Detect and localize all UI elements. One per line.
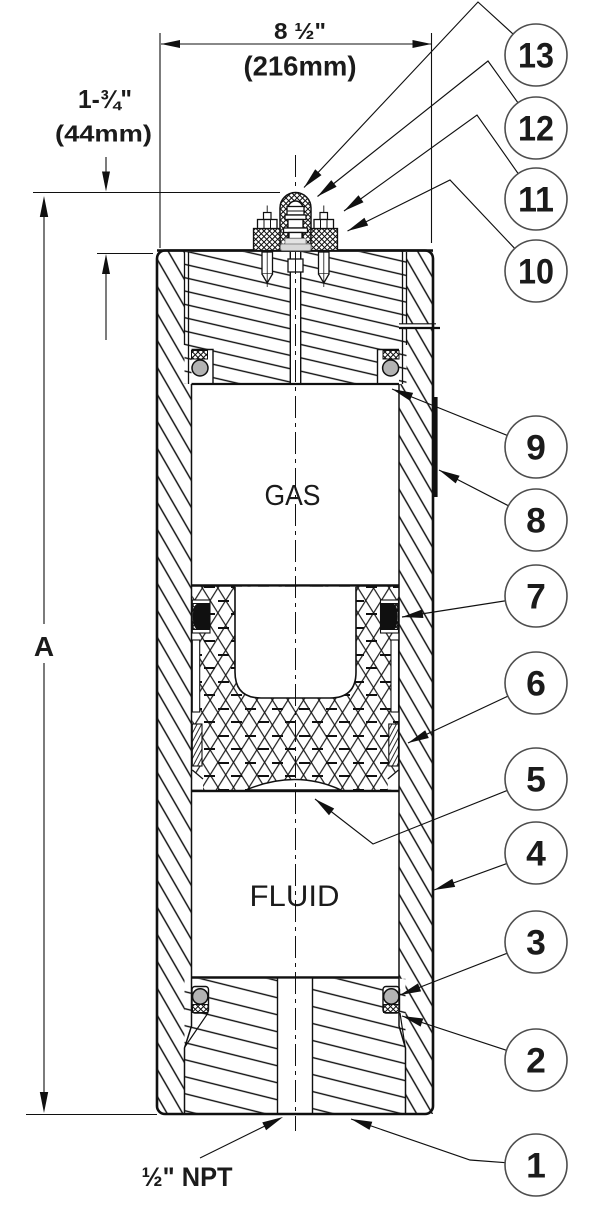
svg-text:4: 4: [526, 834, 546, 874]
svg-text:8: 8: [526, 501, 546, 541]
svg-text:½" NPT: ½" NPT: [142, 1162, 233, 1192]
svg-text:GAS: GAS: [265, 480, 321, 512]
svg-text:6: 6: [526, 664, 546, 704]
svg-text:13: 13: [518, 36, 554, 76]
svg-text:12: 12: [518, 109, 554, 149]
svg-text:9: 9: [526, 428, 546, 468]
svg-text:5: 5: [526, 760, 546, 800]
svg-text:(44mm): (44mm): [55, 121, 152, 147]
svg-text:8 ½": 8 ½": [274, 18, 326, 44]
svg-text:A: A: [34, 631, 54, 662]
svg-text:3: 3: [526, 923, 546, 963]
svg-text:1: 1: [526, 1146, 546, 1186]
svg-text:10: 10: [518, 252, 554, 292]
svg-text:7: 7: [526, 577, 546, 617]
svg-text:(216mm): (216mm): [243, 51, 356, 82]
svg-text:FLUID: FLUID: [250, 880, 340, 913]
svg-text:2: 2: [526, 1041, 546, 1081]
svg-text:11: 11: [518, 180, 554, 220]
svg-text:1-¾": 1-¾": [78, 84, 132, 114]
